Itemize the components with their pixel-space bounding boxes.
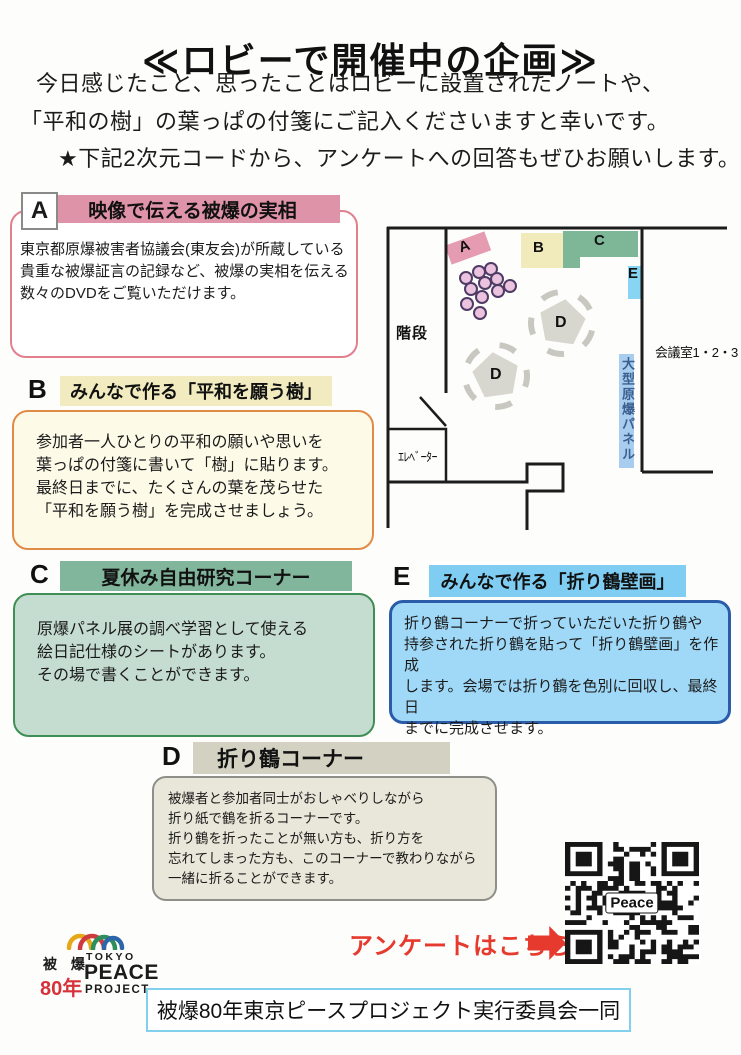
map-zone-b-letter: B bbox=[533, 239, 544, 256]
section-e-body: 折り鶴コーナーで折っていただいた折り鶴や 持参された折り鶴を貼って「折り鶴壁画」… bbox=[389, 600, 731, 724]
section-c-body: 原爆パネル展の調べ学習として使える 絵日記仕様のシートがあります。 その場で書く… bbox=[13, 593, 375, 737]
section-a-title: 映像で伝える被爆の実相 bbox=[45, 195, 340, 223]
floor-map bbox=[380, 215, 741, 550]
intro-line-1: 今日感じたこと、思ったことはロビーに設置されたノートや、 bbox=[36, 66, 664, 98]
section-a-body: 東京都原爆被害者協議会(東友会)が所蔵している貴重な被爆証言の記録など、被爆の実… bbox=[10, 210, 358, 358]
section-e-letter: E bbox=[393, 563, 410, 589]
map-label-elevator: ｴﾚﾍﾞｰﾀｰ bbox=[389, 448, 446, 465]
map-label-panel: 大型原爆パネル bbox=[618, 357, 637, 462]
section-d-title: 折り鶴コーナー bbox=[193, 742, 450, 774]
section-d-letter: D bbox=[162, 743, 181, 769]
map-zone-e-letter: E bbox=[628, 265, 638, 282]
section-b: B みんなで作る「平和を願う樹」 参加者一人ひとりの平和の願いや思いを 葉っぱの… bbox=[12, 373, 347, 531]
intro-line-2: 「平和の樹」の葉っぱの付箋にご記入くださいますと幸いです。 bbox=[20, 104, 669, 136]
footer-committee-box: 被爆80年東京ピースプロジェクト実行委員会一同 bbox=[146, 988, 631, 1032]
section-e-title: みんなで作る「折り鶴壁画」 bbox=[429, 565, 686, 597]
section-b-body: 参加者一人ひとりの平和の願いや思いを 葉っぱの付箋に書いて「樹」に貼ります。 最… bbox=[12, 410, 374, 550]
map-table-d1-letter: D bbox=[555, 314, 567, 332]
section-c-letter: C bbox=[30, 561, 49, 587]
section-d: D 折り鶴コーナー 被爆者と参加者同士がおしゃべりしながら 折り紙で鶴を折るコー… bbox=[152, 740, 479, 890]
logo-haibaku-text: 被 爆 bbox=[43, 954, 90, 974]
rainbow-arches-icon bbox=[65, 922, 127, 950]
map-walls bbox=[387, 227, 727, 530]
logo-project-text: PROJECT bbox=[85, 984, 150, 996]
logo-peace-text: PEACE bbox=[84, 961, 159, 985]
map-label-stairs: 階段 bbox=[396, 322, 428, 343]
intro-line-3: ★下記2次元コードから、アンケートへの回答もぜひお願いします。 bbox=[58, 141, 740, 173]
section-a: A 映像で伝える被爆の実相 東京都原爆被害者協議会(東友会)が所蔵している貴重な… bbox=[10, 190, 345, 330]
flyer-page: { "page": { "title": "≪ロビーで開催中の企画≫", "in… bbox=[0, 0, 741, 1055]
map-zone-c-letter: C bbox=[594, 232, 605, 249]
section-d-body: 被爆者と参加者同士がおしゃべりしながら 折り紙で鶴を折るコーナーです。 折り鶴を… bbox=[152, 776, 497, 901]
section-c-title: 夏休み自由研究コーナー bbox=[60, 561, 352, 591]
qr-code: Peace bbox=[565, 842, 699, 964]
section-b-title: みんなで作る「平和を願う樹」 bbox=[60, 376, 332, 406]
qr-center-label: Peace bbox=[605, 893, 658, 914]
map-label-meeting-rooms: 会議室1・2・3 bbox=[655, 342, 738, 361]
section-b-letter: B bbox=[28, 376, 47, 402]
section-a-letter: A bbox=[21, 192, 58, 230]
map-table-d2-letter: D bbox=[490, 366, 502, 384]
chair-circles bbox=[460, 263, 516, 319]
logo-80year-text: 80年 bbox=[40, 972, 82, 1001]
section-c: C 夏休み自由研究コーナー 原爆パネル展の調べ学習として使える 絵日記仕様のシー… bbox=[12, 558, 348, 714]
section-e: E みんなで作る「折り鶴壁画」 折り鶴コーナーで折っていただいた折り鶴や 持参さ… bbox=[389, 560, 717, 712]
